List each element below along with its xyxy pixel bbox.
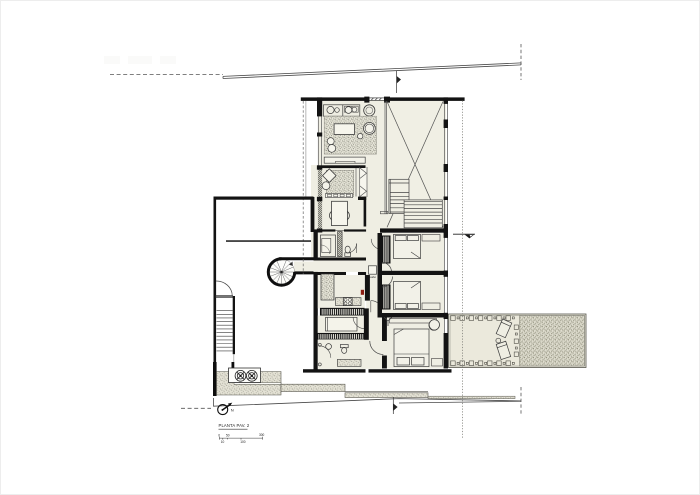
svg-text:0: 0 [218,434,220,438]
svg-text:PLANTA PAV. 2: PLANTA PAV. 2 [219,423,250,428]
svg-text:100: 100 [240,440,246,444]
svg-text:50: 50 [226,434,230,438]
svg-text:10: 10 [221,440,225,444]
svg-text:300: 300 [259,433,265,437]
svg-text:N: N [231,408,234,413]
